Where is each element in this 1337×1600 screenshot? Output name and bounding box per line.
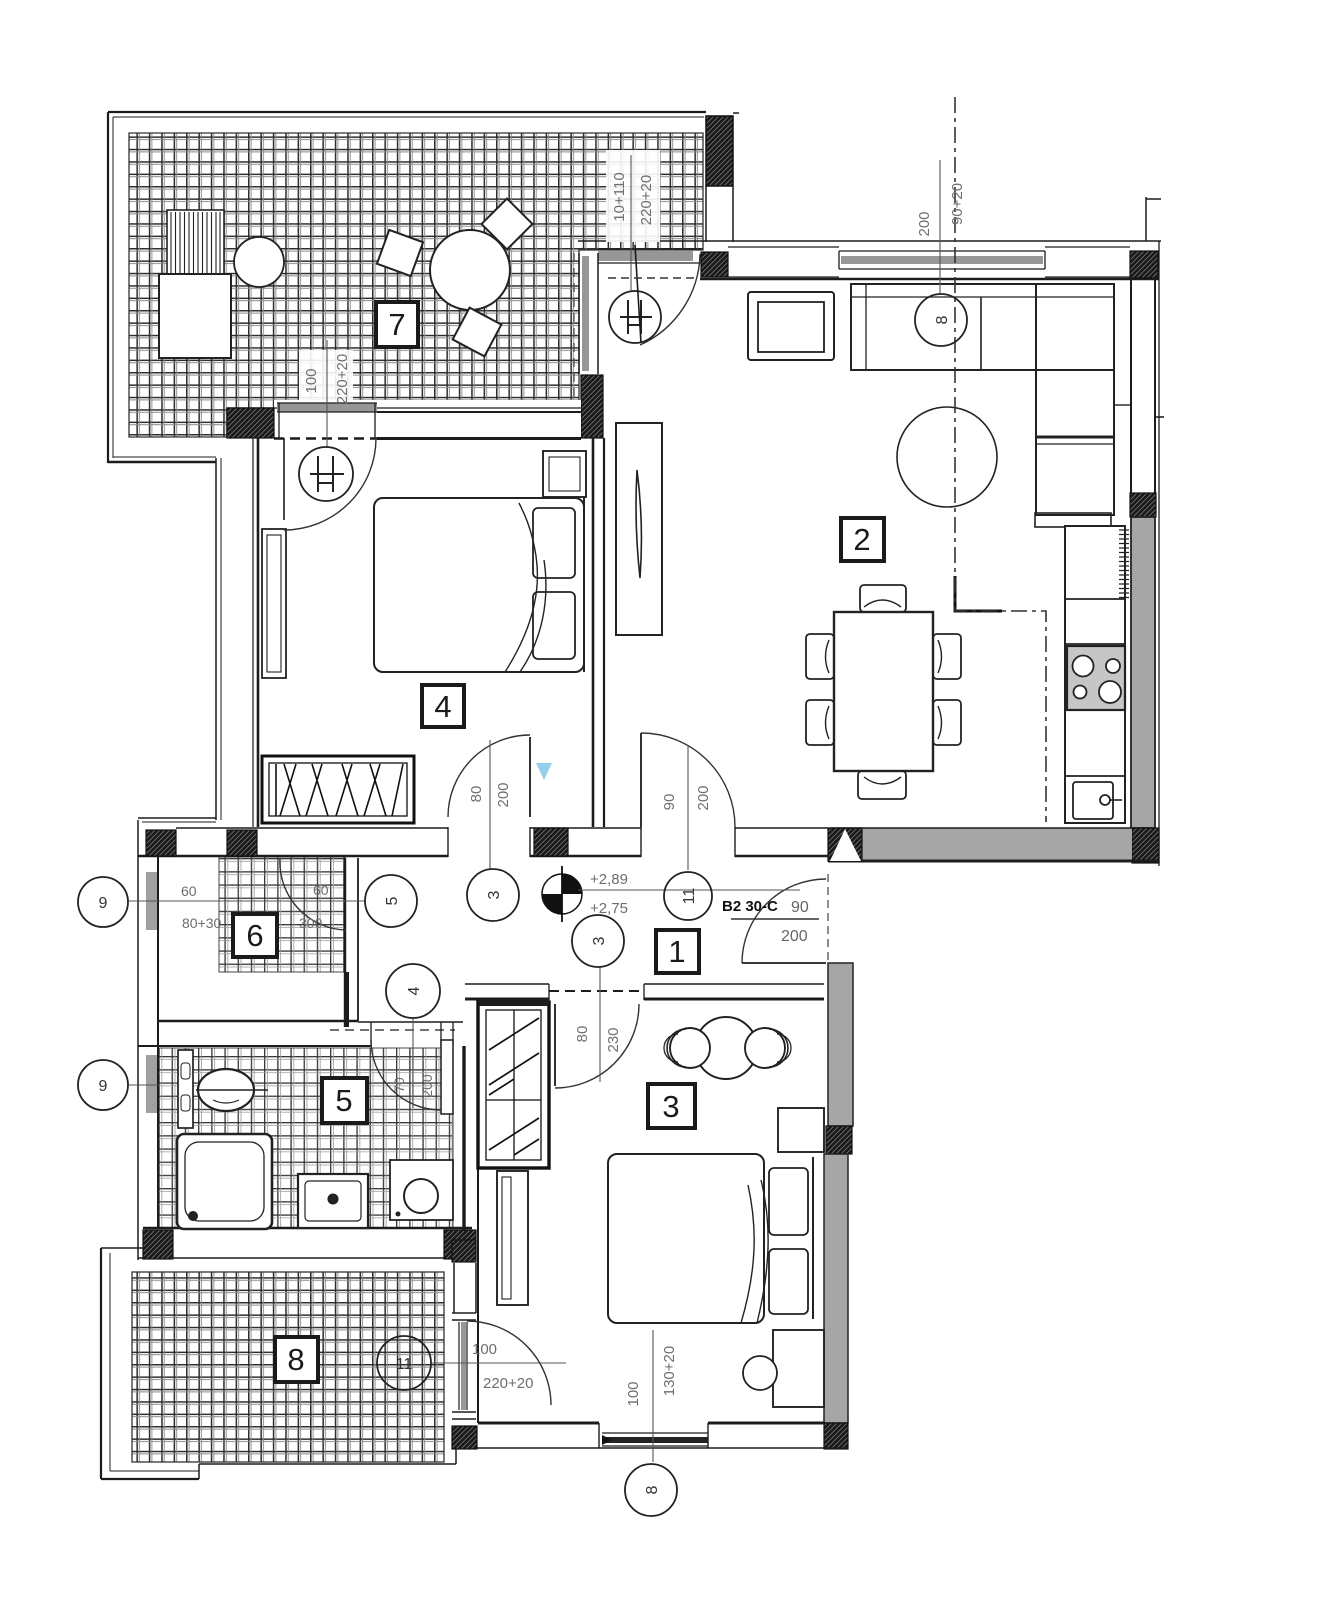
svg-text:100: 100	[303, 368, 320, 393]
svg-text:100: 100	[472, 1341, 497, 1358]
svg-text:3: 3	[486, 890, 503, 899]
svg-text:200: 200	[916, 211, 933, 236]
svg-text:220+20: 220+20	[483, 1375, 533, 1392]
svg-text:4: 4	[406, 986, 423, 995]
svg-text:220+20: 220+20	[638, 175, 655, 225]
svg-text:7: 7	[388, 307, 405, 342]
svg-text:9: 9	[99, 895, 108, 912]
svg-text:90: 90	[791, 899, 809, 916]
svg-text:220+20: 220+20	[334, 354, 351, 404]
svg-text:100: 100	[625, 1381, 642, 1406]
svg-text:5: 5	[384, 896, 401, 905]
svg-text:1: 1	[668, 934, 685, 969]
svg-text:2: 2	[853, 522, 870, 557]
svg-text:70: 70	[391, 1077, 407, 1093]
svg-text:80+30: 80+30	[182, 915, 222, 931]
svg-text:60: 60	[313, 882, 329, 898]
svg-text:11: 11	[396, 1356, 413, 1373]
svg-text:90: 90	[661, 794, 678, 811]
svg-text:8: 8	[934, 315, 951, 324]
svg-text:10+110: 10+110	[611, 172, 628, 221]
svg-text:6: 6	[246, 918, 263, 953]
svg-text:4: 4	[434, 689, 451, 724]
svg-text:3: 3	[591, 936, 608, 945]
svg-text:8: 8	[644, 1485, 661, 1494]
svg-text:200: 200	[695, 785, 712, 810]
svg-text:60: 60	[181, 883, 197, 899]
svg-text:230: 230	[605, 1027, 622, 1052]
svg-text:80: 80	[468, 786, 485, 803]
svg-text:300: 300	[299, 915, 323, 931]
svg-text:+2,89: +2,89	[590, 871, 628, 888]
svg-text:90+20: 90+20	[949, 183, 966, 225]
svg-text:5: 5	[335, 1083, 352, 1118]
svg-text:9: 9	[99, 1078, 108, 1095]
svg-text:130+20: 130+20	[661, 1346, 678, 1396]
svg-text:8: 8	[287, 1342, 304, 1377]
svg-text:200: 200	[781, 928, 808, 945]
svg-text:11: 11	[681, 888, 698, 905]
svg-text:200: 200	[419, 1074, 435, 1098]
svg-text:B2 30-C: B2 30-C	[722, 898, 778, 915]
svg-text:200: 200	[495, 782, 512, 807]
svg-text:80: 80	[574, 1026, 591, 1043]
svg-text:3: 3	[662, 1089, 679, 1124]
